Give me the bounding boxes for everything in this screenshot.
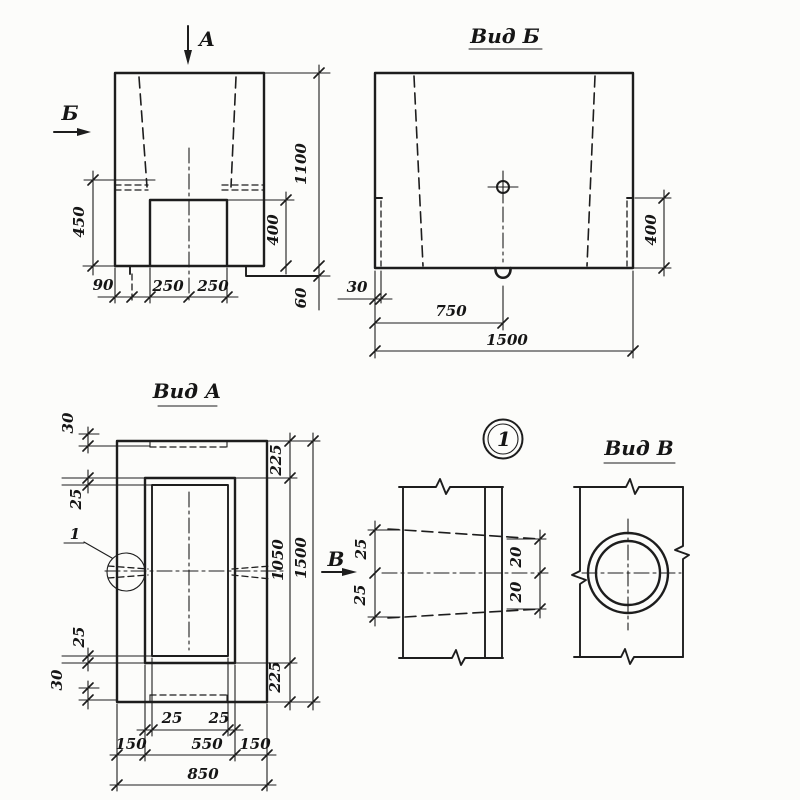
dim-250-left: 250 [151, 277, 184, 295]
detail-callout-label: 1 [70, 525, 80, 543]
view-v-outline [572, 479, 689, 664]
view-a-title-group: Вид А [152, 379, 222, 406]
dim-25-detail-top: 25 [352, 539, 370, 561]
front-view-outline [115, 73, 318, 303]
view-b-title-group: Вид Б [469, 24, 542, 49]
dim-25-bottom-left: 25 [161, 709, 183, 727]
dim-25-detail-bottom: 25 [351, 585, 369, 607]
detail-marker-label: 1 [497, 427, 511, 451]
detail-callout-circle [107, 553, 145, 591]
dim-400-front: 400 [264, 214, 282, 246]
dim-30-top: 30 [59, 412, 77, 433]
dim-225-top: 225 [267, 444, 285, 476]
dim-450: 450 [70, 206, 88, 238]
view-a-dimensions-left: 30 25 25 30 [48, 412, 152, 709]
dim-225-bottom: 225 [266, 661, 284, 693]
direction-label-b: Б [60, 101, 78, 125]
dim-30-view-b: 30 [347, 278, 368, 296]
dim-20-detail-top: 20 [507, 546, 525, 568]
view-b-dimensions: 30 750 1500 400 [338, 190, 671, 358]
view-b: Вид Б 30 750 [338, 24, 671, 358]
dim-25-bottom-right: 25 [208, 709, 230, 727]
view-b-outline [375, 73, 633, 278]
dim-20-detail-bottom: 20 [507, 581, 525, 603]
view-a-title: Вид А [152, 379, 222, 403]
arrow-b-head-icon [77, 128, 91, 136]
dim-25-upper: 25 [67, 489, 85, 511]
detail-callout-1: 1 [64, 525, 145, 591]
arrow-v-head-icon [342, 568, 357, 576]
arrow-a-head-icon [184, 50, 192, 65]
dim-850: 850 [187, 765, 219, 783]
direction-label-v: В [327, 547, 345, 571]
view-a: Вид А 1 В [48, 379, 357, 791]
view-direction-arrow-b: Б [54, 101, 91, 136]
dim-1500-view-b: 1500 [486, 331, 528, 349]
dim-750: 750 [435, 302, 467, 320]
front-view-dimensions: 450 1100 60 400 90 250 250 [70, 65, 330, 310]
view-v-title-group: Вид В [603, 436, 675, 463]
view-v: Вид В [572, 436, 689, 664]
view-b-title: Вид Б [469, 24, 539, 48]
montage-loop [495, 268, 510, 278]
view-direction-arrow-a: А [184, 26, 215, 65]
dim-250-right: 250 [196, 277, 229, 295]
dim-400-view-b: 400 [642, 214, 660, 246]
front-view: А Б 450 1100 60 400 [54, 26, 330, 310]
dim-25-lower: 25 [70, 627, 88, 649]
dim-150-left: 150 [115, 735, 147, 753]
detail-view-1: 1 25 25 20 20 [351, 420, 548, 666]
dim-1100: 1100 [292, 143, 310, 185]
drawing-sheet: А Б 450 1100 60 400 [0, 0, 800, 800]
direction-label-a: А [197, 27, 215, 51]
detail-marker: 1 [484, 420, 523, 459]
dim-1050: 1050 [269, 539, 287, 581]
drawing-canvas: А Б 450 1100 60 400 [0, 0, 800, 800]
dim-60: 60 [292, 287, 310, 308]
dim-150-right: 150 [239, 735, 271, 753]
detail-outline [382, 479, 548, 665]
view-v-title: Вид В [603, 436, 673, 460]
dim-30-bottom: 30 [48, 669, 66, 690]
dim-550: 550 [191, 735, 223, 753]
dim-1500-view-a: 1500 [292, 537, 310, 579]
view-a-dimensions-bottom: 25 25 150 550 150 850 [110, 658, 276, 791]
dim-90: 90 [93, 276, 114, 294]
